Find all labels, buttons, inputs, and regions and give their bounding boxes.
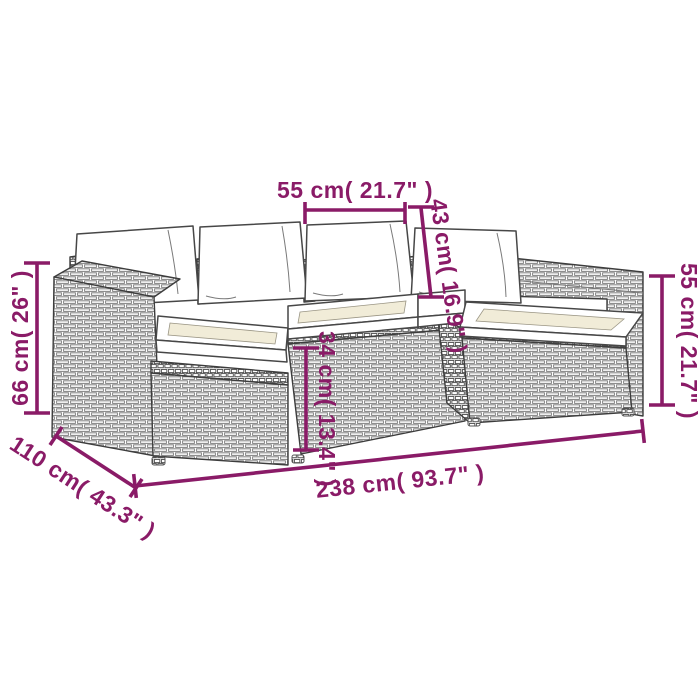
back-pillow xyxy=(198,222,307,304)
left-base-front xyxy=(151,373,288,465)
sofa-leg xyxy=(468,418,480,426)
dim-arm-height-label: 55 cm( 21.7" ) xyxy=(676,263,700,419)
dim-seat-width-label: 55 cm( 21.7" ) xyxy=(277,177,433,203)
dim-total-width-tick xyxy=(642,419,645,443)
sofa-leg xyxy=(292,455,304,463)
dim-total-height-label: 66 cm( 26" ) xyxy=(7,270,33,406)
ottoman-front xyxy=(462,338,632,423)
sofa-leg xyxy=(152,457,165,465)
left-arm-front xyxy=(52,277,161,457)
sofa-leg xyxy=(622,408,634,416)
product-dimension-diagram: 55 cm( 21.7" ) 43 cm( 16.9" ) 66 cm( 26"… xyxy=(0,0,700,700)
back-pillow xyxy=(305,221,414,301)
sofa-illustration: 55 cm( 21.7" ) 43 cm( 16.9" ) 66 cm( 26"… xyxy=(0,0,700,700)
